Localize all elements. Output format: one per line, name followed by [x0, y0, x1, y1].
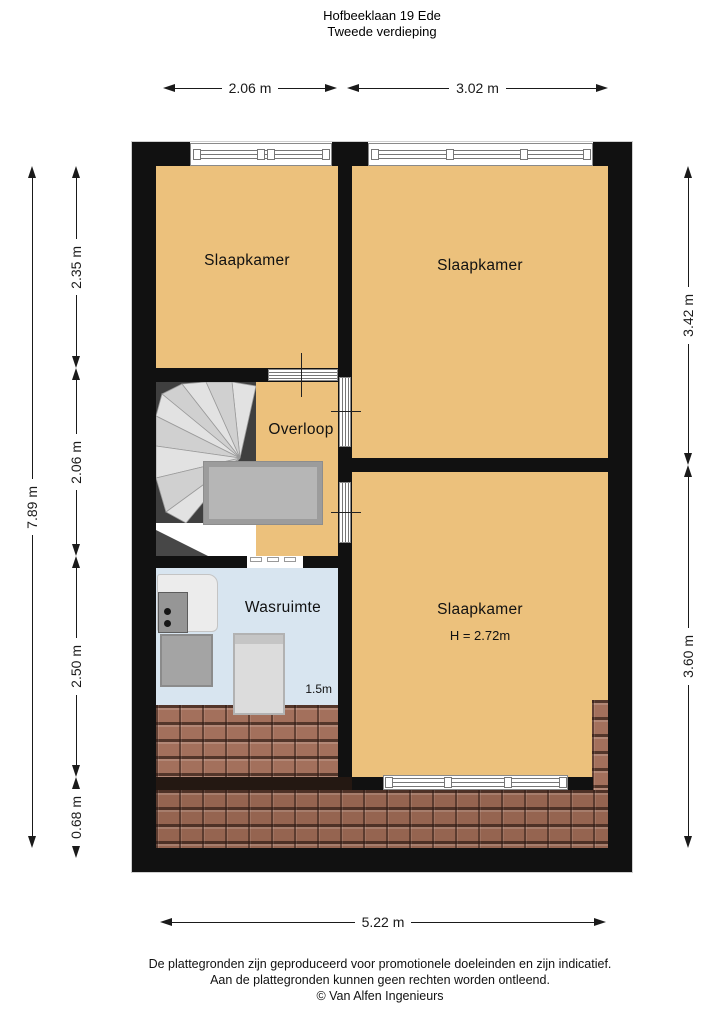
dim-label: 7.89 m — [24, 479, 40, 536]
dim-left-3: 2.50 m — [67, 556, 85, 777]
label-landing: Overloop — [246, 421, 356, 439]
window-mullion — [520, 149, 528, 160]
window-glass — [373, 150, 588, 159]
label-bedroom-bottom-height: H = 2.72m — [352, 628, 608, 643]
wall-bedroom-bottom-right-seg — [568, 777, 593, 790]
label-laundry: Wasruimte — [190, 599, 376, 617]
arrow-left-icon — [347, 84, 359, 92]
window-mullion — [444, 777, 452, 788]
window-mullion — [257, 149, 265, 160]
room-bedroom-top-right — [352, 166, 608, 458]
window-mullion — [504, 777, 512, 788]
dim-label: 2.35 m — [68, 239, 84, 296]
page-title-floor: Tweede verdieping — [132, 24, 632, 39]
window-post — [193, 149, 201, 160]
wall-outer-right — [608, 142, 632, 872]
wall-divider-top — [338, 166, 352, 382]
window-post — [322, 149, 330, 160]
dim-label: 0.68 m — [68, 789, 84, 846]
dim-label: 3.02 m — [449, 80, 506, 96]
dryer-top — [235, 635, 283, 644]
arrow-down-icon — [28, 836, 36, 848]
roof-slope-right — [592, 700, 608, 790]
window-mullion — [446, 149, 454, 160]
window-glass — [388, 778, 563, 787]
faucet-dot — [164, 608, 171, 615]
washing-machine — [160, 634, 213, 687]
window-mullion — [267, 149, 275, 160]
door-tick — [301, 353, 302, 397]
label-height-marker: 1.5m — [270, 682, 332, 696]
footer-disclaimer-1: De plattegronden zijn geproduceerd voor … — [0, 957, 720, 971]
window-post — [583, 149, 591, 160]
label-bedroom-top-right: Slaapkamer — [352, 257, 608, 275]
dim-left-total: 7.89 m — [23, 166, 41, 848]
dim-left-1: 2.35 m — [67, 166, 85, 368]
dim-label: 3.42 m — [680, 287, 696, 344]
door-tick — [331, 411, 361, 412]
label-bedroom-top-left: Slaapkamer — [156, 252, 338, 270]
opening-dash — [267, 557, 279, 562]
arrow-right-icon — [325, 84, 337, 92]
wall-right-bedrooms-divider — [352, 458, 608, 472]
label-bedroom-bottom: Slaapkamer — [352, 601, 608, 619]
dim-label: 3.60 m — [680, 628, 696, 685]
wall-top-mid-block — [332, 142, 368, 166]
arrow-left-icon — [163, 84, 175, 92]
window-bedroom-bottom — [383, 775, 568, 790]
dim-right-2: 3.60 m — [679, 465, 697, 848]
stair-void — [204, 462, 322, 524]
footer-copyright: © Van Alfen Ingenieurs — [0, 989, 720, 1003]
dim-label: 2.06 m — [68, 434, 84, 491]
dim-top-right: 3.02 m — [347, 79, 608, 97]
dim-label: 2.06 m — [222, 80, 279, 96]
opening-laundry — [247, 556, 303, 568]
dim-top-left: 2.06 m — [163, 79, 337, 97]
door-tick — [331, 512, 361, 513]
roof-slope-bottom — [156, 790, 608, 848]
dim-right-1: 3.42 m — [679, 166, 697, 465]
opening-dash — [284, 557, 296, 562]
wall-outer-left — [132, 142, 156, 872]
window-post — [385, 777, 393, 788]
arrow-up-icon — [28, 166, 36, 178]
page-title-address: Hofbeeklaan 19 Ede — [132, 8, 632, 23]
window-bedroom-top-left — [190, 143, 332, 166]
footer-disclaimer-2: Aan de plattegronden kunnen geen rechten… — [0, 973, 720, 987]
floor-plan-page: Hofbeeklaan 19 Ede Tweede verdieping 2.0… — [0, 0, 720, 1017]
arrow-right-icon — [596, 84, 608, 92]
window-post — [559, 777, 567, 788]
dim-label: 5.22 m — [355, 914, 412, 930]
wall-top-left-block — [132, 142, 190, 166]
faucet-dot — [164, 620, 171, 627]
window-post — [371, 149, 379, 160]
wall-bedroom-bottom-left-seg — [352, 777, 383, 790]
wall-outer-bottom — [132, 848, 632, 872]
laundry-sink — [158, 592, 188, 633]
dim-bottom: 5.22 m — [160, 913, 606, 931]
dim-label: 2.50 m — [68, 638, 84, 695]
dim-left-2: 2.06 m — [67, 368, 85, 556]
opening-dash — [250, 557, 262, 562]
wall-laundry-bottom — [156, 777, 352, 790]
room-bedroom-bottom — [352, 472, 608, 777]
window-bedroom-top-right — [368, 143, 593, 166]
dim-left-4: 0.68 m — [67, 777, 85, 848]
dryer — [233, 633, 285, 715]
wall-top-right-block — [593, 142, 632, 166]
door-bedroom-top-left — [268, 369, 338, 381]
roof-slope-laundry — [156, 705, 338, 777]
